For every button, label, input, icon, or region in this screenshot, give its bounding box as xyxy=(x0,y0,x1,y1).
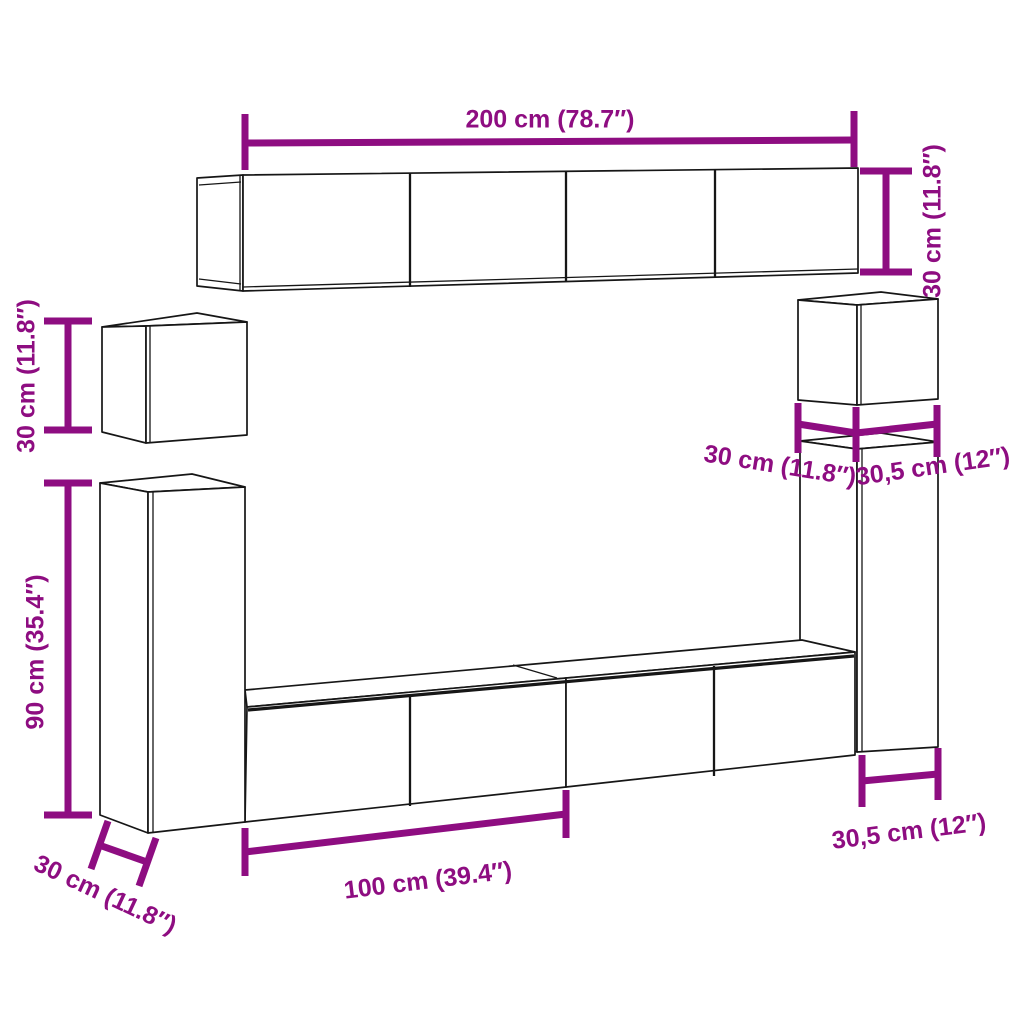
top-cabinet xyxy=(197,168,858,291)
dim-left-tall-height xyxy=(44,483,92,815)
dim-label-top-cabinet-width: 200 cm (78.7″) xyxy=(465,106,634,135)
diagram-canvas: 200 cm (78.7″) 30 cm (11.8″) 30 cm (11.8… xyxy=(0,0,1024,1024)
left-cube-cabinet xyxy=(102,313,247,443)
bottom-cabinet xyxy=(245,640,855,822)
dim-top-height xyxy=(860,171,912,272)
right-cube-cabinet xyxy=(798,292,938,405)
left-tall-cabinet xyxy=(100,474,245,833)
dim-label-top-cabinet-height: 30 cm (11.8″) xyxy=(919,144,948,298)
dim-label-left-tall-height: 90 cm (35.4″) xyxy=(22,574,51,729)
dim-right-tall-width xyxy=(862,748,938,807)
furniture-line-art xyxy=(0,0,1024,1024)
dim-left-cube-height xyxy=(44,321,92,430)
dim-label-left-cube-height: 30 cm (11.8″) xyxy=(13,299,42,453)
